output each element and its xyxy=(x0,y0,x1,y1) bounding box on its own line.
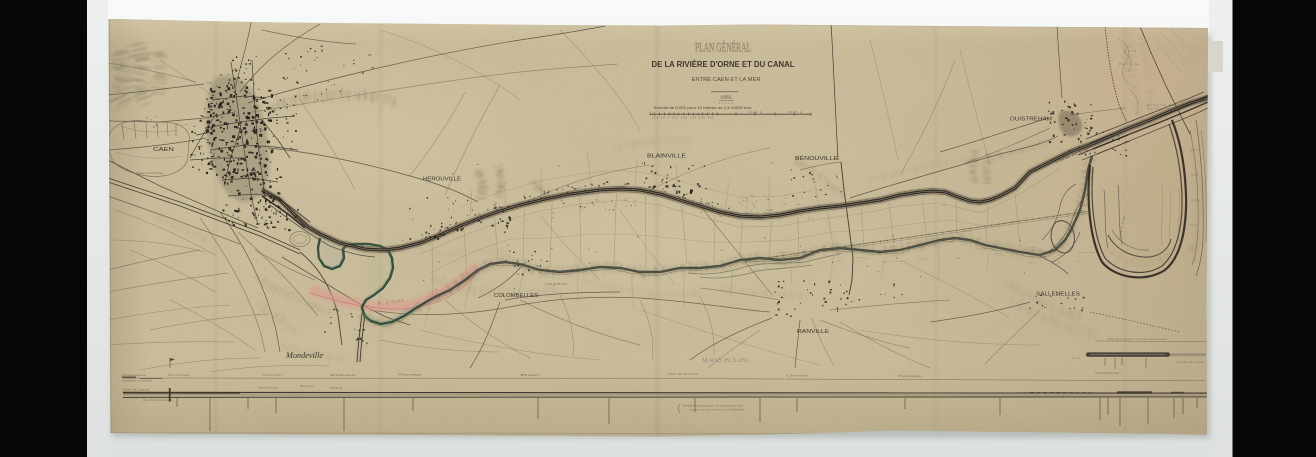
svg-text:DE LA RIVIÈRE D'ORNE ET DU CAN: DE LA RIVIÈRE D'ORNE ET DU CANAL xyxy=(652,60,795,69)
svg-text:COLOMBELLES: COLOMBELLES xyxy=(494,293,539,299)
svg-text:BÉNOUVILLE: BÉNOUVILLE xyxy=(795,155,839,162)
svg-text:2000 m: 2000 m xyxy=(788,111,802,114)
svg-text:Chemin: Chemin xyxy=(786,374,809,378)
svg-text:Longueval: Longueval xyxy=(545,282,567,286)
svg-text:1862: 1862 xyxy=(721,94,733,99)
svg-text:Ecluse: Ecluse xyxy=(330,373,358,377)
svg-text:ENTRE CAEN ET LA MER: ENTRE CAEN ET LA MER xyxy=(692,77,761,83)
svg-text:vers la mer: vers la mer xyxy=(1176,360,1204,364)
svg-text:annee: annee xyxy=(719,102,734,105)
svg-text:Pont: Pont xyxy=(330,387,343,390)
svg-text:Passage: Passage xyxy=(898,374,923,378)
svg-text:Plan des hautes mers de vives: Plan des hautes mers de vives eaux xyxy=(1107,337,1168,341)
svg-text:1 m: 1 m xyxy=(1072,356,1080,360)
svg-text:Ouistreham: Ouistreham xyxy=(1147,108,1173,111)
svg-text:Distances: Distances xyxy=(122,373,147,377)
svg-text:Plan du canal: Plan du canal xyxy=(123,388,150,392)
svg-text:RANVILLE: RANVILLE xyxy=(797,329,830,335)
svg-text:Prairie du Grand Parc: Prairie du Grand Parc xyxy=(136,171,165,175)
svg-text:Chaussee du pont: Chaussee du pont xyxy=(258,387,278,390)
svg-text:OUISTREHAM: OUISTREHAM xyxy=(1010,117,1052,123)
svg-text:M.R13 (N.1-15): M.R13 (N.1-15) xyxy=(702,358,748,364)
svg-text:BLAINVILLE: BLAINVILLE xyxy=(647,154,687,160)
svg-text:Mondeville: Mondeville xyxy=(285,350,323,360)
svg-text:Pont de Caen: Pont de Caen xyxy=(168,373,191,377)
svg-text:1000 m: 1000 m xyxy=(748,111,762,114)
svg-text:CAEN: CAEN xyxy=(153,147,174,153)
svg-text:PLAN GÉNÉRAL: PLAN GÉNÉRAL xyxy=(695,41,751,55)
svg-text:100 50 0 100 200 300 400: 100 50 0 100 200 300 400 500 xyxy=(652,117,715,120)
svg-text:SALLENELLES: SALLENELLES xyxy=(1036,292,1081,298)
svg-text:Echelle de 0,001 pour 10 metre: Echelle de 0,001 pour 10 metres ou 1 a 1… xyxy=(654,106,752,110)
svg-text:Chemin: Chemin xyxy=(262,373,283,377)
svg-text:basses mers de vives eaux a Ou: basses mers de vives eaux a Ouistreham xyxy=(689,408,745,412)
svg-text:Bac: Bac xyxy=(520,373,543,377)
svg-text:Passage: Passage xyxy=(398,373,423,377)
svg-text:Ouistreham: Ouistreham xyxy=(1095,371,1121,375)
svg-text:Pont de Ranville: Pont de Ranville xyxy=(668,372,699,376)
svg-text:partielles cumulees: partielles cumulees xyxy=(122,379,153,383)
svg-text:HEROUVILLE: HEROUVILLE xyxy=(423,177,462,183)
svg-text:Ecluse: Ecluse xyxy=(300,385,315,388)
